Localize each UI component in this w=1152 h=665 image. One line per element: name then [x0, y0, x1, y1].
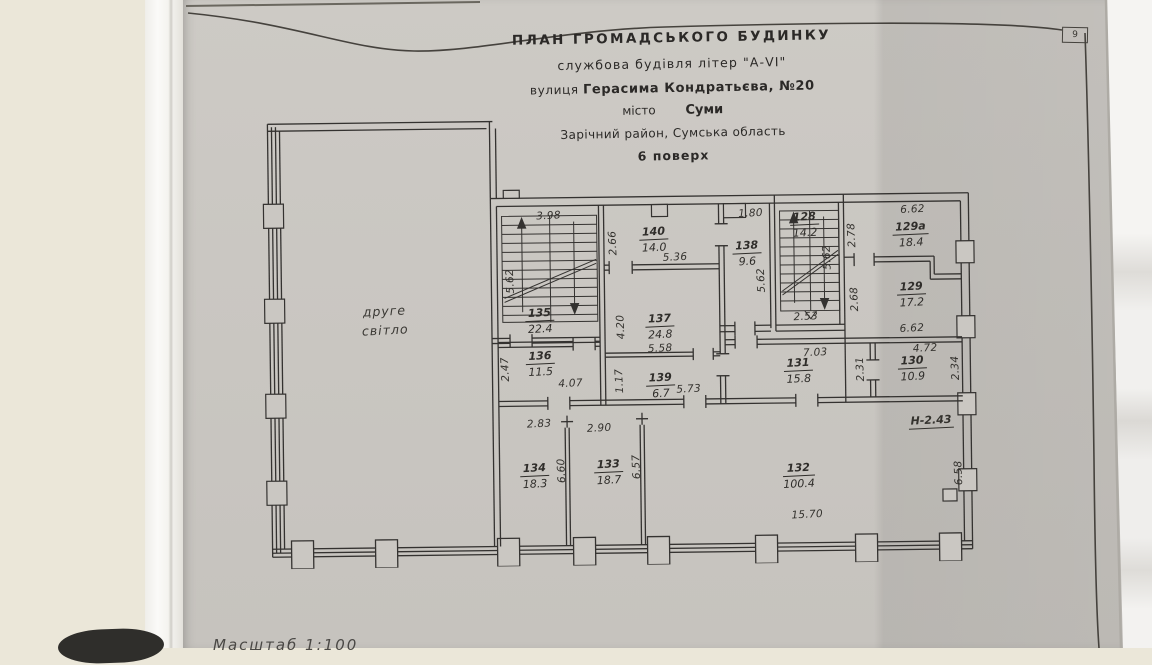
dimension-label: 2.78: [845, 223, 858, 248]
dimension-label: 5.58: [648, 342, 673, 355]
dimension-label: 2.90: [587, 422, 612, 435]
void-area-label: друге світло: [361, 300, 409, 341]
dimension-label: 2.31: [854, 356, 867, 381]
room-label: 12814.2: [790, 210, 820, 240]
dimension-label: 5.73: [676, 383, 701, 396]
dimension-label: 6.60: [555, 458, 568, 483]
room-label: 13611.5: [525, 349, 555, 379]
dimension-label: 2.34: [949, 355, 962, 380]
room-label: 1396.7: [645, 370, 675, 400]
floor-plan: друге світло Н-2.43 13522.413611.513724.…: [252, 101, 988, 570]
dimension-label: 5.62: [504, 269, 517, 294]
dimension-label: 15.70: [791, 508, 823, 521]
dimension-label: 5.62: [820, 245, 833, 270]
dimension-label: 2.66: [606, 231, 619, 256]
dimension-label: 7.03: [803, 346, 828, 359]
dimension-label: 2.47: [499, 357, 512, 382]
ceiling-height-note: Н-2.43: [908, 413, 954, 430]
dimension-label: 1.17: [613, 368, 626, 393]
dimension-label: 5.62: [755, 268, 768, 293]
photo-of-floor-plan: { "page": { "number": "9", "scale_note":…: [0, 0, 1152, 648]
dimension-label: 2.68: [848, 287, 861, 312]
room-label: 13522.4: [525, 306, 555, 336]
dimension-label: 4.07: [558, 377, 583, 390]
dimension-label: 1.80: [738, 207, 763, 220]
room-label: 13115.8: [783, 356, 813, 386]
room-label: 1389.6: [732, 238, 762, 268]
dimension-label: 2.53: [793, 310, 818, 323]
dimension-label: 3.98: [536, 209, 561, 222]
scale-note: Масштаб 1:100: [213, 636, 358, 654]
room-label: 132100.4: [782, 461, 815, 491]
page-number: 9: [1072, 30, 1078, 40]
room-label: 13724.8: [645, 311, 675, 341]
room-label: 14014.0: [639, 224, 669, 254]
street-value: Герасима Кондратьєва, №20: [583, 79, 815, 98]
dimension-label: 2.83: [527, 417, 552, 430]
room-label: 13418.3: [520, 461, 550, 491]
dimension-label: 4.20: [614, 314, 627, 339]
room-label: 129а18.4: [892, 219, 930, 250]
shadow-corner: [57, 627, 164, 665]
room-label: 13318.7: [594, 457, 624, 487]
page-number-box: 9: [1062, 27, 1088, 43]
dimension-label: 5.36: [662, 251, 687, 264]
dimension-label: 6.57: [630, 454, 643, 479]
dimension-label: 6.62: [899, 322, 924, 335]
dimension-label: 6.62: [900, 203, 925, 216]
dimension-label: 6.58: [952, 460, 965, 485]
room-label: 13010.9: [897, 353, 927, 383]
floor-plan-labels: друге світло Н-2.43 13522.413611.513724.…: [252, 101, 988, 570]
room-label: 12917.2: [896, 279, 926, 309]
dimension-label: 4.72: [913, 342, 938, 355]
street-label: вулиця: [530, 83, 579, 98]
plan-subtitle: службова будівля літер "А-VI": [499, 53, 844, 74]
street-line: вулиця Герасима Кондратьєва, №20: [500, 78, 845, 99]
